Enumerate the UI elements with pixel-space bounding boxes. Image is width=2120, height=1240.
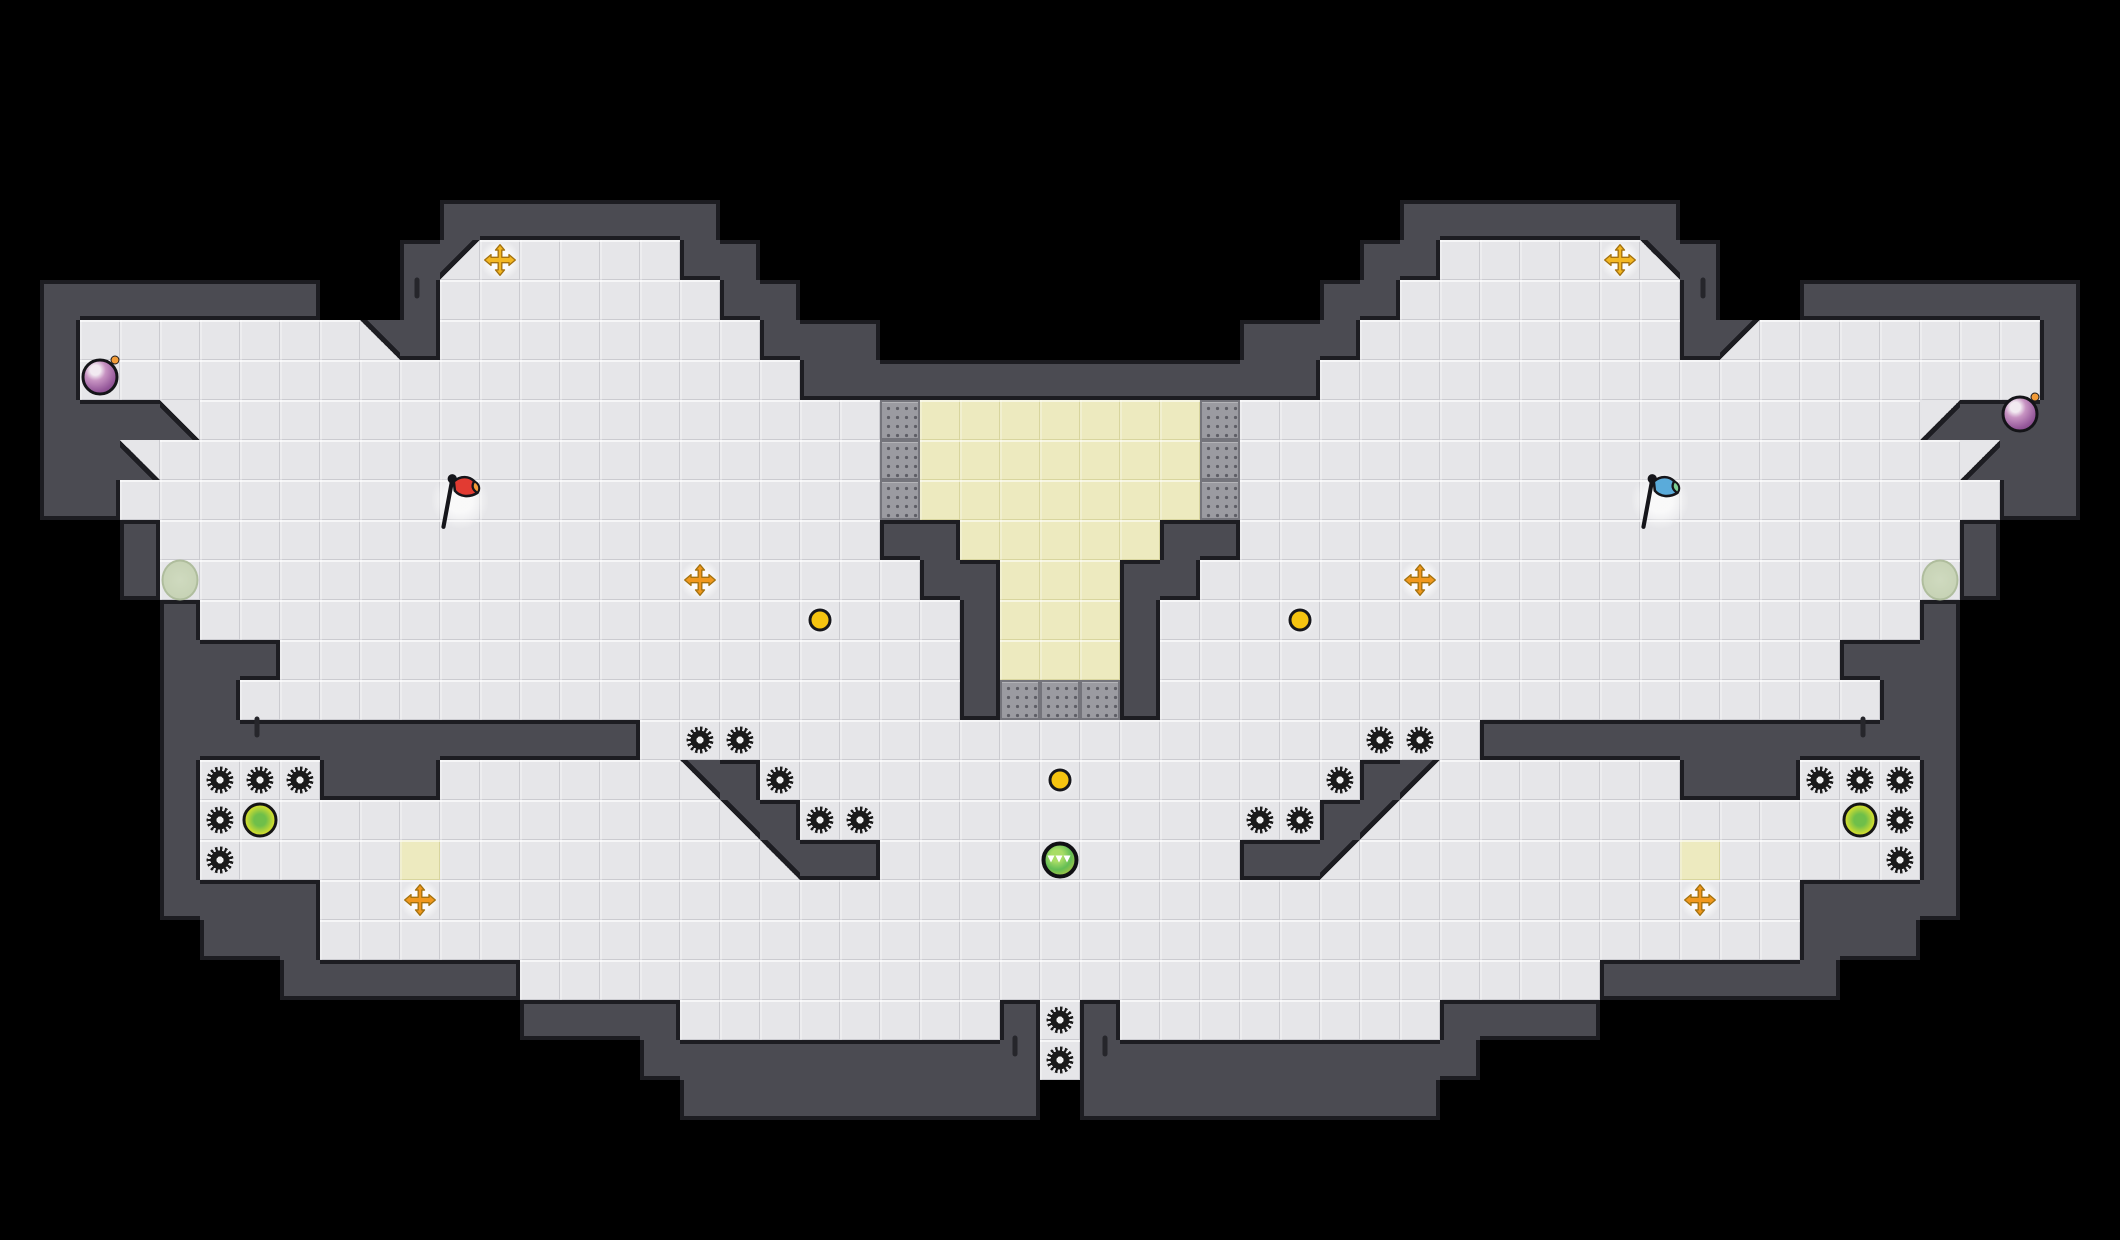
wall-tile <box>1360 1040 1400 1080</box>
floor-tile <box>920 800 960 840</box>
floor-tile <box>1920 480 1960 520</box>
mine-gear <box>1887 847 1914 874</box>
floor-tile <box>480 760 520 800</box>
wall-tile <box>1280 1080 1320 1120</box>
floor-tile <box>320 920 360 960</box>
wall-tile <box>1920 280 1960 320</box>
mine-gear <box>847 807 874 834</box>
wall-tile <box>1920 760 1960 800</box>
floor-tile <box>920 640 960 680</box>
sand-floor-tile <box>1040 400 1080 440</box>
floor-tile <box>840 400 880 440</box>
wall-tile <box>1080 1080 1120 1120</box>
sand-floor-tile <box>1000 440 1040 480</box>
floor-tile <box>520 280 560 320</box>
wall-tile <box>1000 1040 1040 1080</box>
wall-tile <box>200 720 240 760</box>
floor-tile <box>240 480 280 520</box>
floor-tile <box>1480 440 1520 480</box>
wall-tile <box>1080 1040 1120 1080</box>
floor-tile <box>640 880 680 920</box>
wall-diagonal-tile <box>1920 400 1960 440</box>
wall-tile <box>1200 1040 1240 1080</box>
wall-tile <box>680 240 720 280</box>
launch-cross-icon <box>1680 880 1720 920</box>
floor-tile <box>1560 240 1600 280</box>
wall-diagonal-tile <box>680 760 720 800</box>
wall-tile <box>1000 1000 1040 1040</box>
sand-floor-tile <box>1120 480 1160 520</box>
wall-tile <box>1520 1000 1560 1040</box>
floor-tile <box>1120 840 1160 880</box>
floor-tile <box>1240 560 1280 600</box>
floor-tile <box>120 320 160 360</box>
floor-tile <box>1280 560 1320 600</box>
wall-diagonal-shape <box>1400 760 1440 800</box>
floor-tile <box>280 520 320 560</box>
floor-tile <box>800 720 840 760</box>
wall-tile <box>480 720 520 760</box>
wall-tile <box>960 680 1000 720</box>
wall-tile <box>880 1040 920 1080</box>
floor-tile <box>1760 680 1800 720</box>
floor-tile <box>1080 960 1120 1000</box>
floor-tile <box>720 360 760 400</box>
dotted-block-tile <box>1200 440 1240 480</box>
floor-tile <box>1880 480 1920 520</box>
floor-tile <box>160 360 200 400</box>
wall-tile <box>1960 280 2000 320</box>
floor-tile <box>1520 840 1560 880</box>
floor-tile <box>1000 920 1040 960</box>
floor-tile <box>1480 240 1520 280</box>
floor-tile <box>480 360 520 400</box>
floor-tile <box>600 800 640 840</box>
floor-tile <box>1520 960 1560 1000</box>
floor-tile <box>760 1000 800 1040</box>
wall-tile <box>960 1040 1000 1080</box>
floor-tile <box>1480 400 1520 440</box>
wall-tile <box>680 1080 720 1120</box>
floor-tile <box>360 880 400 920</box>
floor-tile <box>1960 320 2000 360</box>
floor-tile <box>560 800 600 840</box>
wall-tile <box>1000 360 1040 400</box>
wall-tile <box>1680 760 1720 800</box>
floor-tile <box>720 560 760 600</box>
wall-tile <box>400 760 440 800</box>
floor-tile <box>1840 480 1880 520</box>
floor-tile <box>440 640 480 680</box>
floor-tile <box>680 400 720 440</box>
wall-tile <box>160 600 200 640</box>
floor-tile <box>1200 640 1240 680</box>
ninja-orb <box>1042 842 1079 879</box>
sand-floor-tile <box>1080 520 1120 560</box>
wall-tile <box>760 1040 800 1080</box>
floor-tile <box>840 720 880 760</box>
floor-tile <box>960 880 1000 920</box>
floor-tile <box>560 920 600 960</box>
floor-tile <box>1480 280 1520 320</box>
wall-tile <box>1760 960 1800 1000</box>
floor-tile <box>1120 800 1160 840</box>
mine-gear <box>1407 727 1434 754</box>
sand-floor-tile <box>1040 640 1080 680</box>
floor-tile <box>640 600 680 640</box>
floor-tile <box>720 480 760 520</box>
floor-tile <box>440 760 480 800</box>
floor-tile <box>1680 640 1720 680</box>
floor-tile <box>80 320 120 360</box>
floor-tile <box>560 400 600 440</box>
sand-floor-tile <box>400 840 440 880</box>
floor-tile <box>1160 840 1200 880</box>
floor-tile <box>1200 800 1240 840</box>
sand-floor-tile <box>1080 440 1120 480</box>
wall-tile <box>1040 360 1080 400</box>
mine-gear <box>1847 767 1874 794</box>
wall-tile <box>920 1040 960 1080</box>
floor-tile <box>1600 920 1640 960</box>
floor-tile <box>1760 800 1800 840</box>
floor-tile <box>880 640 920 680</box>
floor-tile <box>1200 1000 1240 1040</box>
floor-tile <box>1440 840 1480 880</box>
floor-tile <box>520 880 560 920</box>
wall-tile <box>200 920 240 960</box>
floor-tile <box>280 560 320 600</box>
floor-tile <box>1440 600 1480 640</box>
floor-tile <box>200 320 240 360</box>
launch-cross-icon <box>480 240 520 280</box>
floor-tile <box>1240 760 1280 800</box>
wall-tile <box>280 720 320 760</box>
wall-tile <box>400 280 440 320</box>
floor-tile <box>600 640 640 680</box>
floor-tile <box>1520 440 1560 480</box>
wall-tile <box>920 360 960 400</box>
floor-tile <box>720 880 760 920</box>
floor-tile <box>840 960 880 1000</box>
floor-tile <box>1800 360 1840 400</box>
floor-tile <box>800 680 840 720</box>
wall-tile <box>1560 720 1600 760</box>
wall-tile <box>40 400 80 440</box>
floor-tile <box>440 880 480 920</box>
floor-tile <box>1680 560 1720 600</box>
floor-tile <box>240 320 280 360</box>
floor-tile <box>2000 320 2040 360</box>
floor-tile <box>360 480 400 520</box>
floor-tile <box>800 440 840 480</box>
floor-tile <box>1560 920 1600 960</box>
floor-tile <box>760 480 800 520</box>
floor-tile <box>480 800 520 840</box>
floor-tile <box>1160 680 1200 720</box>
floor-tile <box>400 680 440 720</box>
wall-tile <box>40 440 80 480</box>
wall-diagonal-shape <box>1920 400 1960 440</box>
mine-gear <box>1367 727 1394 754</box>
wall-tile <box>360 760 400 800</box>
floor-tile <box>1400 840 1440 880</box>
wall-tile <box>120 560 160 600</box>
wall-tile <box>1960 520 2000 560</box>
floor-tile <box>760 880 800 920</box>
floor-tile <box>1200 920 1240 960</box>
floor-tile <box>520 680 560 720</box>
floor-tile <box>1160 920 1200 960</box>
floor-tile <box>1520 400 1560 440</box>
floor-tile <box>1760 560 1800 600</box>
floor-tile <box>1360 440 1400 480</box>
sand-floor-tile <box>1000 400 1040 440</box>
wall-tile <box>240 720 280 760</box>
wall-tile <box>2000 480 2040 520</box>
floor-tile <box>1360 400 1400 440</box>
floor-tile <box>200 560 240 600</box>
floor-tile <box>1480 560 1520 600</box>
floor-tile <box>1560 320 1600 360</box>
floor-tile <box>600 560 640 600</box>
floor-tile <box>1360 560 1400 600</box>
power-orb <box>243 803 278 838</box>
mine-gear <box>767 767 794 794</box>
floor-tile <box>360 400 400 440</box>
wall-tile <box>1240 320 1280 360</box>
floor-tile <box>560 880 600 920</box>
wall-tile <box>1080 360 1120 400</box>
launch-cross-icon <box>1600 240 1640 280</box>
floor-tile <box>1160 960 1200 1000</box>
floor-tile <box>680 360 720 400</box>
floor-tile <box>520 400 560 440</box>
floor-tile <box>840 920 880 960</box>
floor-tile <box>1560 480 1600 520</box>
floor-tile <box>1400 280 1440 320</box>
floor-tile <box>640 480 680 520</box>
wall-tile <box>600 1000 640 1040</box>
wall-tile <box>2040 400 2080 440</box>
wall-tile <box>240 640 280 680</box>
wall-tile <box>1360 1080 1400 1120</box>
floor-tile <box>640 720 680 760</box>
floor-tile <box>1720 600 1760 640</box>
wall-mark <box>415 278 420 299</box>
mine-gear <box>247 767 274 794</box>
wall-tile <box>840 320 880 360</box>
wall-tile <box>1320 800 1360 840</box>
floor-tile <box>720 960 760 1000</box>
floor-tile <box>320 800 360 840</box>
floor-tile <box>1720 680 1760 720</box>
wall-tile <box>1800 960 1840 1000</box>
floor-tile <box>1600 600 1640 640</box>
floor-tile <box>280 680 320 720</box>
floor-tile <box>320 440 360 480</box>
floor-tile <box>880 760 920 800</box>
floor-tile <box>1240 520 1280 560</box>
floor-tile <box>320 600 360 640</box>
floor-tile <box>1200 840 1240 880</box>
wall-tile <box>1800 280 1840 320</box>
wall-tile <box>880 360 920 400</box>
floor-tile <box>600 360 640 400</box>
launch-cross-icon <box>1400 560 1440 600</box>
floor-tile <box>1000 720 1040 760</box>
floor-tile <box>1160 640 1200 680</box>
wall-tile <box>280 960 320 1000</box>
floor-tile <box>240 680 280 720</box>
floor-tile <box>1680 920 1720 960</box>
floor-tile <box>960 760 1000 800</box>
floor-tile <box>1280 680 1320 720</box>
wall-tile <box>1600 720 1640 760</box>
floor-tile <box>1800 520 1840 560</box>
floor-tile <box>1640 800 1680 840</box>
floor-tile <box>1360 880 1400 920</box>
wall-tile <box>160 280 200 320</box>
floor-tile <box>480 400 520 440</box>
floor-tile <box>1840 840 1880 880</box>
floor-tile <box>600 840 640 880</box>
wall-tile <box>320 960 360 1000</box>
floor-tile <box>1400 1000 1440 1040</box>
wall-tile <box>960 360 1000 400</box>
floor-tile <box>1280 760 1320 800</box>
wall-diagonal-tile <box>1360 800 1400 840</box>
floor-tile <box>600 400 640 440</box>
wall-diagonal-tile <box>360 320 400 360</box>
floor-tile <box>280 320 320 360</box>
floor-tile <box>1600 640 1640 680</box>
floor-tile <box>1680 360 1720 400</box>
wall-tile <box>400 960 440 1000</box>
wall-tile <box>240 880 280 920</box>
wall-diagonal-shape <box>120 440 160 480</box>
wall-tile <box>40 280 80 320</box>
floor-tile <box>1600 360 1640 400</box>
floor-tile <box>560 440 600 480</box>
floor-tile <box>720 680 760 720</box>
floor-tile <box>1360 920 1400 960</box>
wall-tile <box>1480 720 1520 760</box>
mine-gear <box>1807 767 1834 794</box>
mine-gear <box>207 847 234 874</box>
wall-tile <box>1280 360 1320 400</box>
wall-tile <box>400 320 440 360</box>
wall-tile <box>1160 1040 1200 1080</box>
floor-tile <box>640 840 680 880</box>
floor-tile <box>760 400 800 440</box>
floor-tile <box>520 440 560 480</box>
wall-tile <box>800 320 840 360</box>
floor-tile <box>1080 760 1120 800</box>
floor-tile <box>1280 920 1320 960</box>
floor-tile <box>640 240 680 280</box>
floor-tile <box>1280 480 1320 520</box>
floor-tile <box>560 360 600 400</box>
floor-tile <box>880 960 920 1000</box>
floor-tile <box>600 680 640 720</box>
wall-tile <box>160 840 200 880</box>
wall-tile <box>1880 680 1920 720</box>
coin <box>1049 769 1072 792</box>
wall-mark <box>1701 278 1706 299</box>
floor-tile <box>1760 600 1800 640</box>
wall-tile <box>160 720 200 760</box>
wall-tile <box>1120 360 1160 400</box>
wall-tile <box>1560 1000 1600 1040</box>
wall-diagonal-shape <box>1960 440 2000 480</box>
floor-tile <box>520 240 560 280</box>
floor-tile <box>1520 280 1560 320</box>
floor-tile <box>1320 520 1360 560</box>
sand-floor-tile <box>1040 560 1080 600</box>
flag-blue <box>1632 469 1688 531</box>
wall-tile <box>1840 920 1880 960</box>
floor-tile <box>920 760 960 800</box>
floor-tile <box>1440 280 1480 320</box>
wall-tile <box>1920 720 1960 760</box>
floor-tile <box>280 480 320 520</box>
floor-tile <box>1160 720 1200 760</box>
floor-tile <box>880 800 920 840</box>
floor-tile <box>1520 240 1560 280</box>
wall-tile <box>440 200 480 240</box>
wall-tile <box>640 1000 680 1040</box>
wall-tile <box>200 680 240 720</box>
wall-tile <box>1920 600 1960 640</box>
sand-floor-tile <box>1160 480 1200 520</box>
floor-tile <box>320 880 360 920</box>
floor-tile <box>1400 960 1440 1000</box>
wall-tile <box>120 400 160 440</box>
floor-tile <box>1920 520 1960 560</box>
floor-tile <box>1600 280 1640 320</box>
dotted-block-tile <box>880 400 920 440</box>
floor-tile <box>880 920 920 960</box>
wall-tile <box>280 280 320 320</box>
floor-tile <box>160 480 200 520</box>
floor-tile <box>1640 320 1680 360</box>
floor-tile <box>840 480 880 520</box>
wall-tile <box>680 1040 720 1080</box>
floor-tile <box>1440 920 1480 960</box>
floor-tile <box>1200 960 1240 1000</box>
coin <box>809 609 832 632</box>
floor-tile <box>1040 800 1080 840</box>
floor-tile <box>600 880 640 920</box>
wall-tile <box>1280 840 1320 880</box>
sand-floor-tile <box>1000 520 1040 560</box>
floor-tile <box>1280 400 1320 440</box>
floor-tile <box>1360 360 1400 400</box>
sand-floor-tile <box>960 440 1000 480</box>
sand-floor-tile <box>1080 600 1120 640</box>
spawn-oval <box>1922 560 1959 601</box>
wall-tile <box>640 1040 680 1080</box>
floor-tile <box>280 800 320 840</box>
floor-tile <box>560 520 600 560</box>
floor-tile <box>600 480 640 520</box>
floor-tile <box>920 720 960 760</box>
floor-tile <box>1360 320 1400 360</box>
floor-tile <box>560 480 600 520</box>
floor-tile <box>1640 560 1680 600</box>
floor-tile <box>1640 920 1680 960</box>
